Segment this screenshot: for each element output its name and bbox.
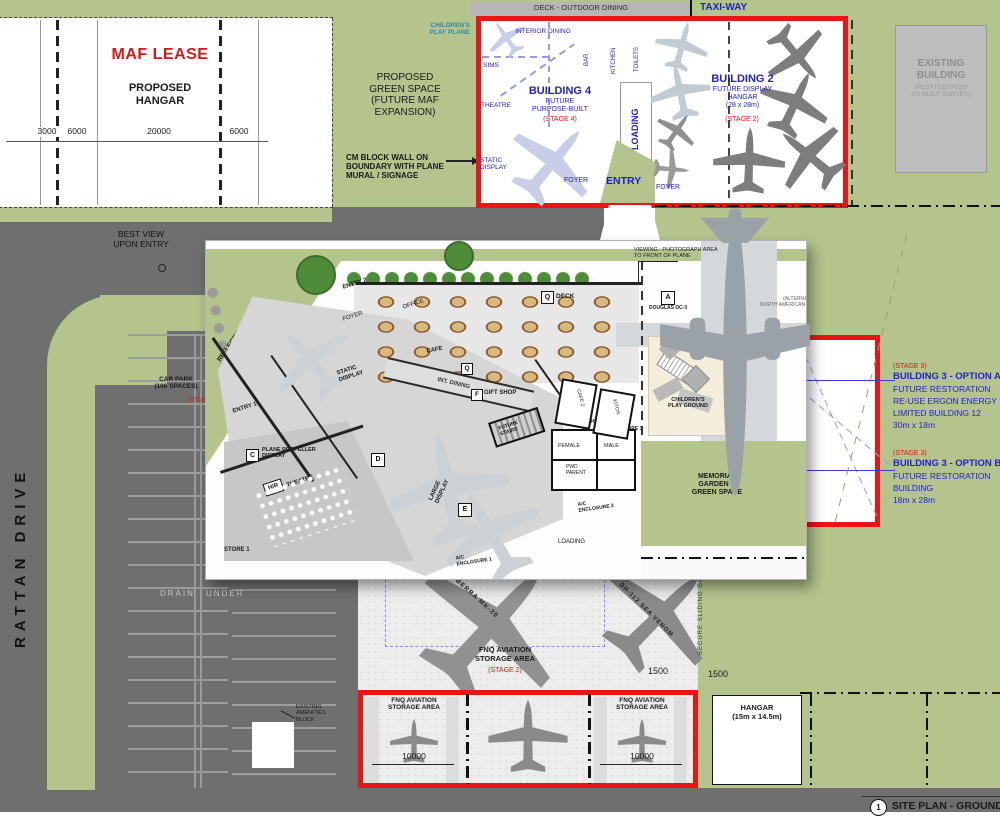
hangar-label: HANGAR (15m x 14.5m): [714, 704, 800, 721]
bay1-dim-line: [372, 764, 454, 765]
titleblock-rule: [862, 796, 1000, 797]
b3b-size: 18m x 28m: [893, 496, 1000, 506]
dim-6000-b: 6000: [223, 127, 255, 137]
b4-toilets-label: TOILETS: [634, 47, 641, 72]
dc3-plane-icon: [657, 172, 813, 557]
stored-plane-icon: [616, 718, 668, 770]
verge-strip-top: [0, 205, 332, 222]
dim-3000: 3000: [34, 127, 60, 137]
south-road: [0, 788, 1000, 812]
b4-theatre-label: THEATRE: [481, 102, 511, 109]
dim-6000-a: 6000: [62, 127, 92, 137]
gift-shop-label: GIFT SHOP: [484, 390, 516, 397]
b3b-line2: BUILDING: [893, 484, 1000, 494]
bay3-dim-line: [600, 764, 682, 765]
boundary-line: [690, 0, 692, 17]
existing-building-label: EXISTING BUILDING: [900, 58, 982, 81]
stored-plane-icon: [388, 718, 440, 770]
b3a-line3: LIMITED BUILDING 12: [893, 409, 1000, 419]
b3-leader-line: [802, 380, 895, 381]
existing-building-footprint: [895, 25, 987, 173]
b4-title: BUILDING 4: [510, 85, 610, 98]
bay-divider: [588, 694, 591, 784]
b2-stage-label: (STAGE 2): [712, 116, 772, 124]
toilets-divider: [553, 459, 634, 461]
lot-line: [810, 694, 812, 788]
car-park-label: CAR PARK (106 SPACES): [146, 376, 206, 391]
deck-label: DECK: [556, 293, 574, 300]
amenities-footprint: [252, 722, 294, 768]
lot-boundary: [851, 20, 853, 206]
b2-subtitle: FUTURE DISPLAY HANGAR (28 x 28m): [700, 86, 785, 110]
drain-label-left: DRAIN: [160, 589, 195, 598]
children-play-plane-label: CHILDREN'S PLAY PLANE: [404, 22, 470, 37]
b4-interior-dining-label: INTERIOR DINING: [508, 28, 578, 35]
store1-label: STORE 1: [224, 547, 250, 554]
existing-building-note: (PLOTTED FROM AS-BUILT SURVEY): [898, 84, 984, 99]
b3a-stage: (STAGE 3): [893, 363, 953, 371]
b3a-line1: FUTURE RESTORATION: [893, 385, 1000, 395]
b3a-size: 30m x 18m: [893, 421, 1000, 431]
b4-kitchen-label: KITCHEN: [611, 48, 618, 74]
b4-bar-label: BAR: [584, 54, 591, 66]
best-view-marker-icon: [158, 264, 166, 272]
tree-icon: [444, 241, 474, 271]
lot-line: [800, 692, 1000, 694]
dim-20000: 20000: [137, 127, 181, 137]
b2-title: BUILDING 2: [695, 73, 790, 86]
bay1-dim: 10000: [384, 752, 444, 762]
amenities-label: EXISTING AMENITIES BLOCK: [296, 704, 346, 723]
b3a-title: BUILDING 3 - OPTION A:: [893, 372, 1000, 383]
drain-label-right: UNDER: [206, 589, 244, 598]
bay1-label: FNQ AVIATION STORAGE AREA: [368, 697, 460, 712]
deck-outdoor-dining-label: DECK - OUTDOOR DINING: [470, 4, 692, 13]
female-label: FEMALE: [558, 443, 580, 449]
key-q-deck: Q: [541, 291, 554, 304]
b4-foyer-label: FOYER: [564, 177, 598, 185]
cm-wall-note: CM BLOCK WALL ON BOUNDARY WITH PLANE MUR…: [346, 153, 468, 181]
cm-wall-arrow-line: [446, 160, 472, 162]
storage-stage-label: (STAGE 2): [470, 667, 540, 675]
taxiway-label: TAXI-WAY: [700, 2, 790, 14]
site-plan-page: MAF LEASE PROPOSED HANGAR 3000 6000 2000…: [0, 0, 1000, 822]
b4-sims-label: SIMS: [483, 62, 499, 69]
dim-1500-a: 1500: [648, 666, 668, 676]
ac-enclosure2-label: A/C ENCLOSURE 2: [577, 495, 634, 514]
b4-stage-label: (STAGE 4): [530, 116, 590, 124]
key-e: E: [458, 503, 472, 517]
viewing-bracket: [638, 261, 639, 285]
key-d: D: [371, 453, 385, 467]
maf-wall-line: [56, 20, 59, 205]
inset-loading-label: LOADING: [558, 539, 585, 546]
wall: [356, 282, 641, 285]
propeller-display-label: PLANE PROPELLER DISPLAY: [262, 447, 330, 460]
male-label: MALE: [604, 443, 619, 449]
lot-line: [926, 694, 928, 788]
rattan-drive-label: RATTAN DRIVE: [12, 467, 29, 648]
bay3-dim: 10000: [612, 752, 672, 762]
key-f-giftshop: F: [471, 389, 483, 401]
titleblock-title: SITE PLAN - GROUND LEVEL: [892, 800, 1000, 812]
maf-grid-line: [258, 20, 259, 205]
best-view-label: BEST VIEW UPON ENTRY: [102, 230, 180, 250]
b4-static-display-label: STATIC DISPLAY: [480, 157, 520, 172]
b3b-stage: (STAGE 3): [893, 450, 953, 458]
stored-jet-icon: [485, 698, 571, 784]
inset-boundary: [641, 557, 806, 559]
b3a-line2: RE-USE ERGON ENERGY: [893, 397, 1000, 407]
maf-grid-line: [40, 20, 41, 205]
maf-hangar-label: PROPOSED HANGAR: [95, 82, 225, 107]
pwd-parent-label: PWD PARENT: [566, 465, 604, 477]
dim-1500-b: 1500: [708, 669, 728, 679]
secure-gate-label: SECURE SLIDING GATE: [698, 568, 705, 655]
b3b-line1: FUTURE RESTORATION: [893, 472, 1000, 482]
maf-dim-line: [6, 141, 268, 142]
maf-lease-label: MAF LEASE: [80, 46, 240, 64]
b4-subtitle: FUTURE PURPOSE-BUILT: [520, 98, 600, 114]
key-q2: Q: [461, 363, 473, 375]
entry-walkway: [600, 205, 660, 240]
green-space-label: PROPOSED GREEN SPACE (FUTURE MAF EXPANSI…: [340, 72, 470, 118]
b3b-title: BUILDING 3 - OPTION B:: [893, 459, 1000, 470]
verge-strip-vertical: [47, 370, 95, 790]
loading-label: LOADING: [630, 109, 640, 151]
bay-divider: [466, 694, 469, 784]
bay3-label: FNQ AVIATION STORAGE AREA: [596, 697, 688, 712]
titleblock-number: 1: [870, 799, 887, 816]
key-c-propeller: C: [246, 449, 259, 462]
storage-area-label: FNQ AVIATION STORAGE AREA: [440, 646, 570, 663]
tree-icon: [296, 255, 336, 295]
